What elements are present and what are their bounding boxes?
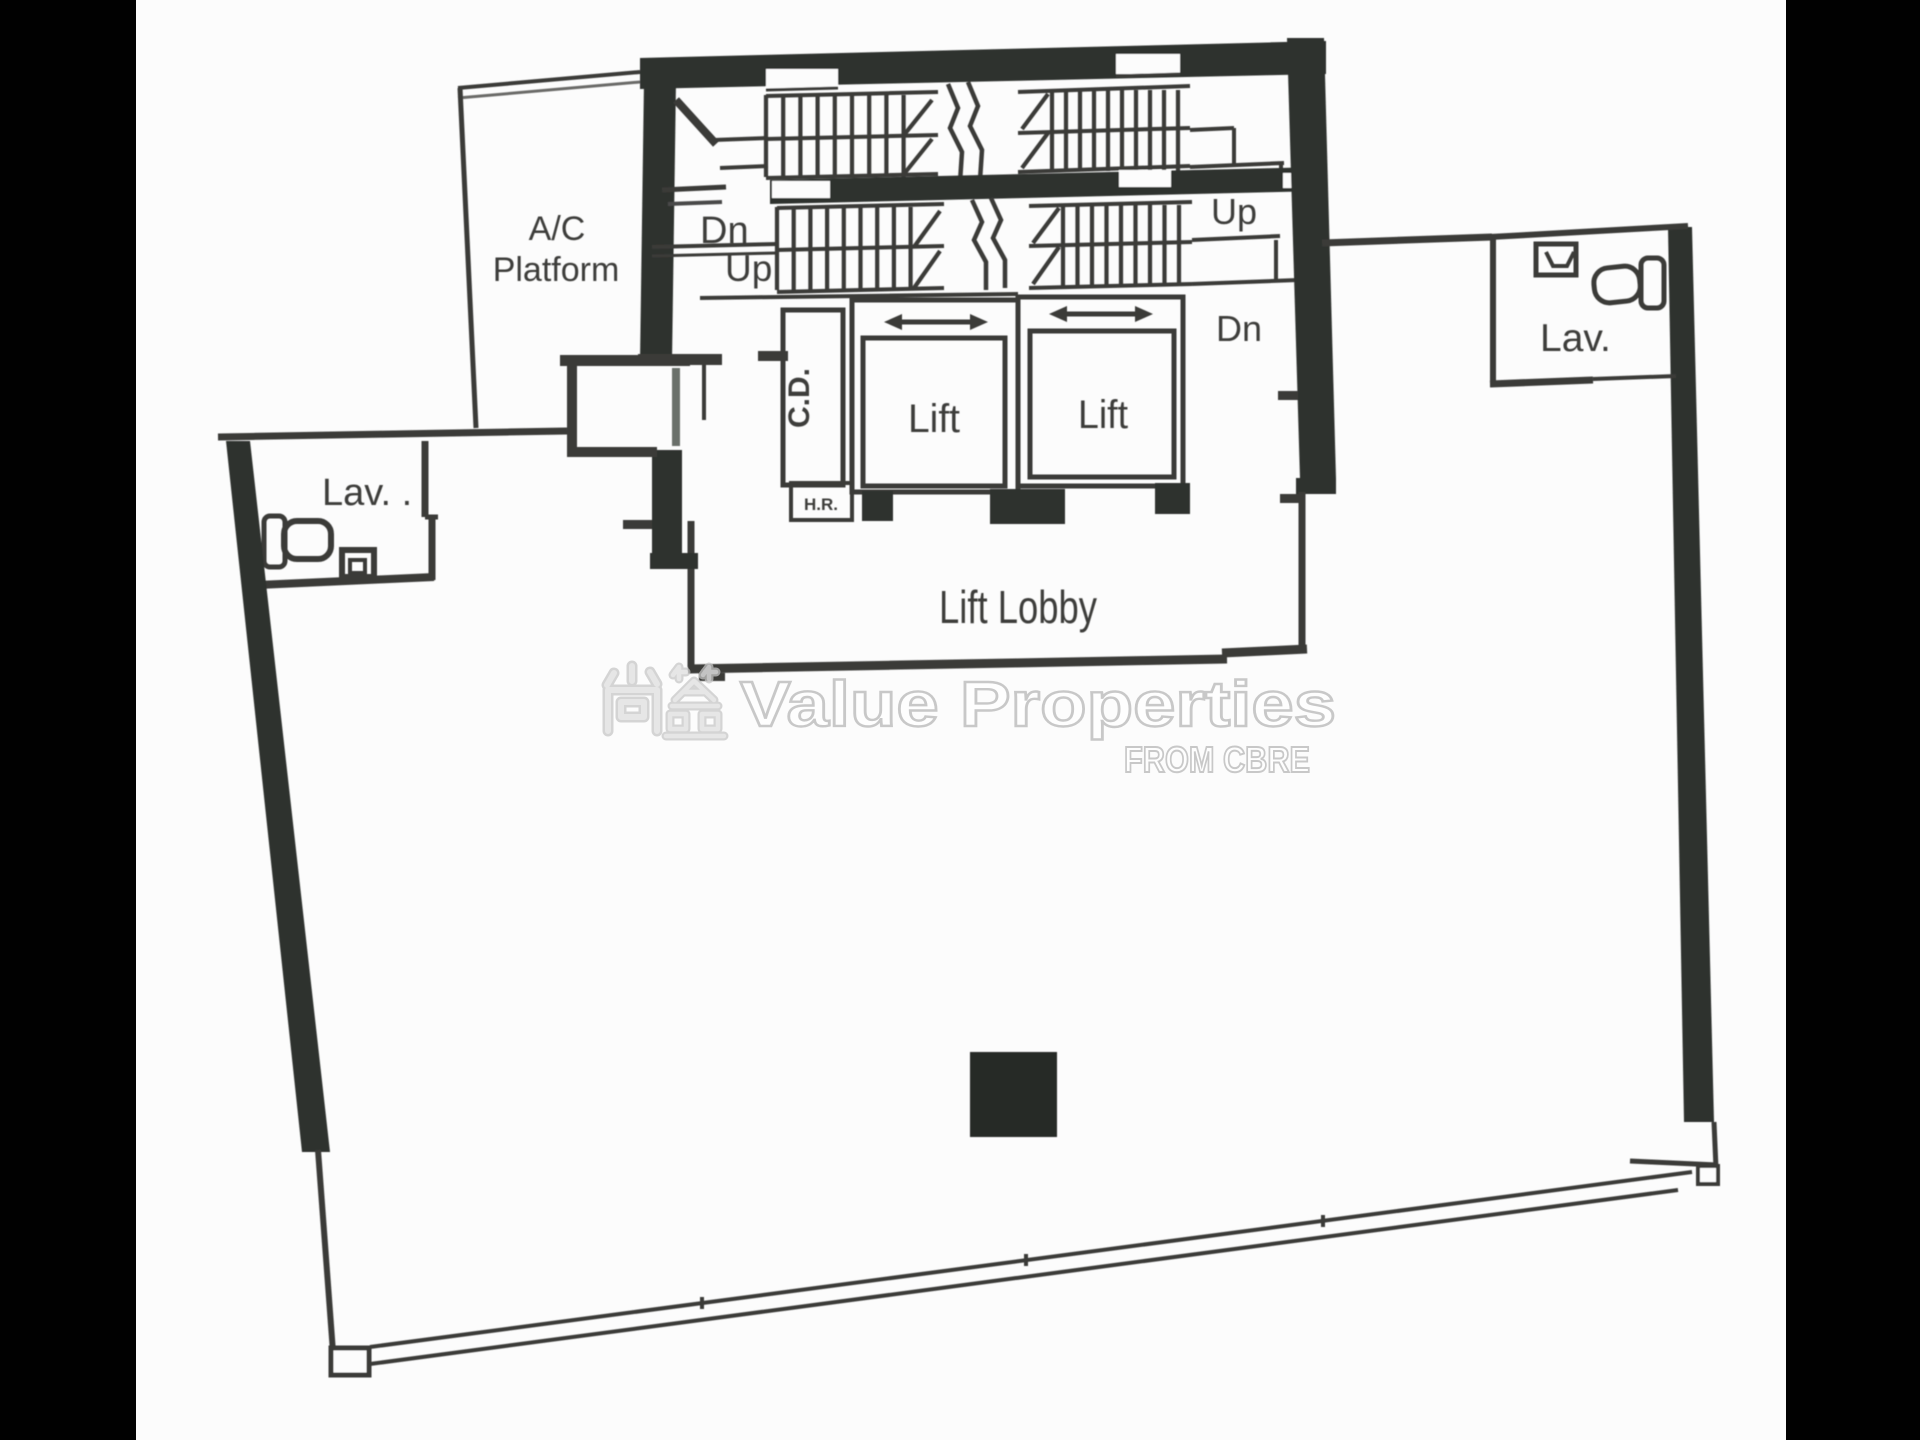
svg-text:A/C: A/C — [529, 210, 586, 248]
svg-text:Platform: Platform — [493, 251, 620, 289]
svg-text:Lav.: Lav. — [1540, 317, 1611, 360]
svg-text:Dn: Dn — [700, 210, 749, 252]
svg-text:Value Properties: Value Properties — [740, 668, 1336, 740]
svg-text:C.D.: C.D. — [783, 368, 816, 428]
svg-text:FROM CBRE: FROM CBRE — [1124, 739, 1310, 780]
svg-text:H.R.: H.R. — [804, 495, 838, 514]
svg-text:Lav. .: Lav. . — [322, 472, 412, 514]
svg-text:Lift: Lift — [1078, 393, 1128, 437]
svg-text:Lift: Lift — [908, 397, 960, 441]
svg-text:Up: Up — [1211, 191, 1257, 232]
svg-text:Up: Up — [725, 248, 772, 289]
svg-text:Dn: Dn — [1216, 308, 1262, 349]
svg-text:Lift Lobby: Lift Lobby — [939, 581, 1097, 633]
